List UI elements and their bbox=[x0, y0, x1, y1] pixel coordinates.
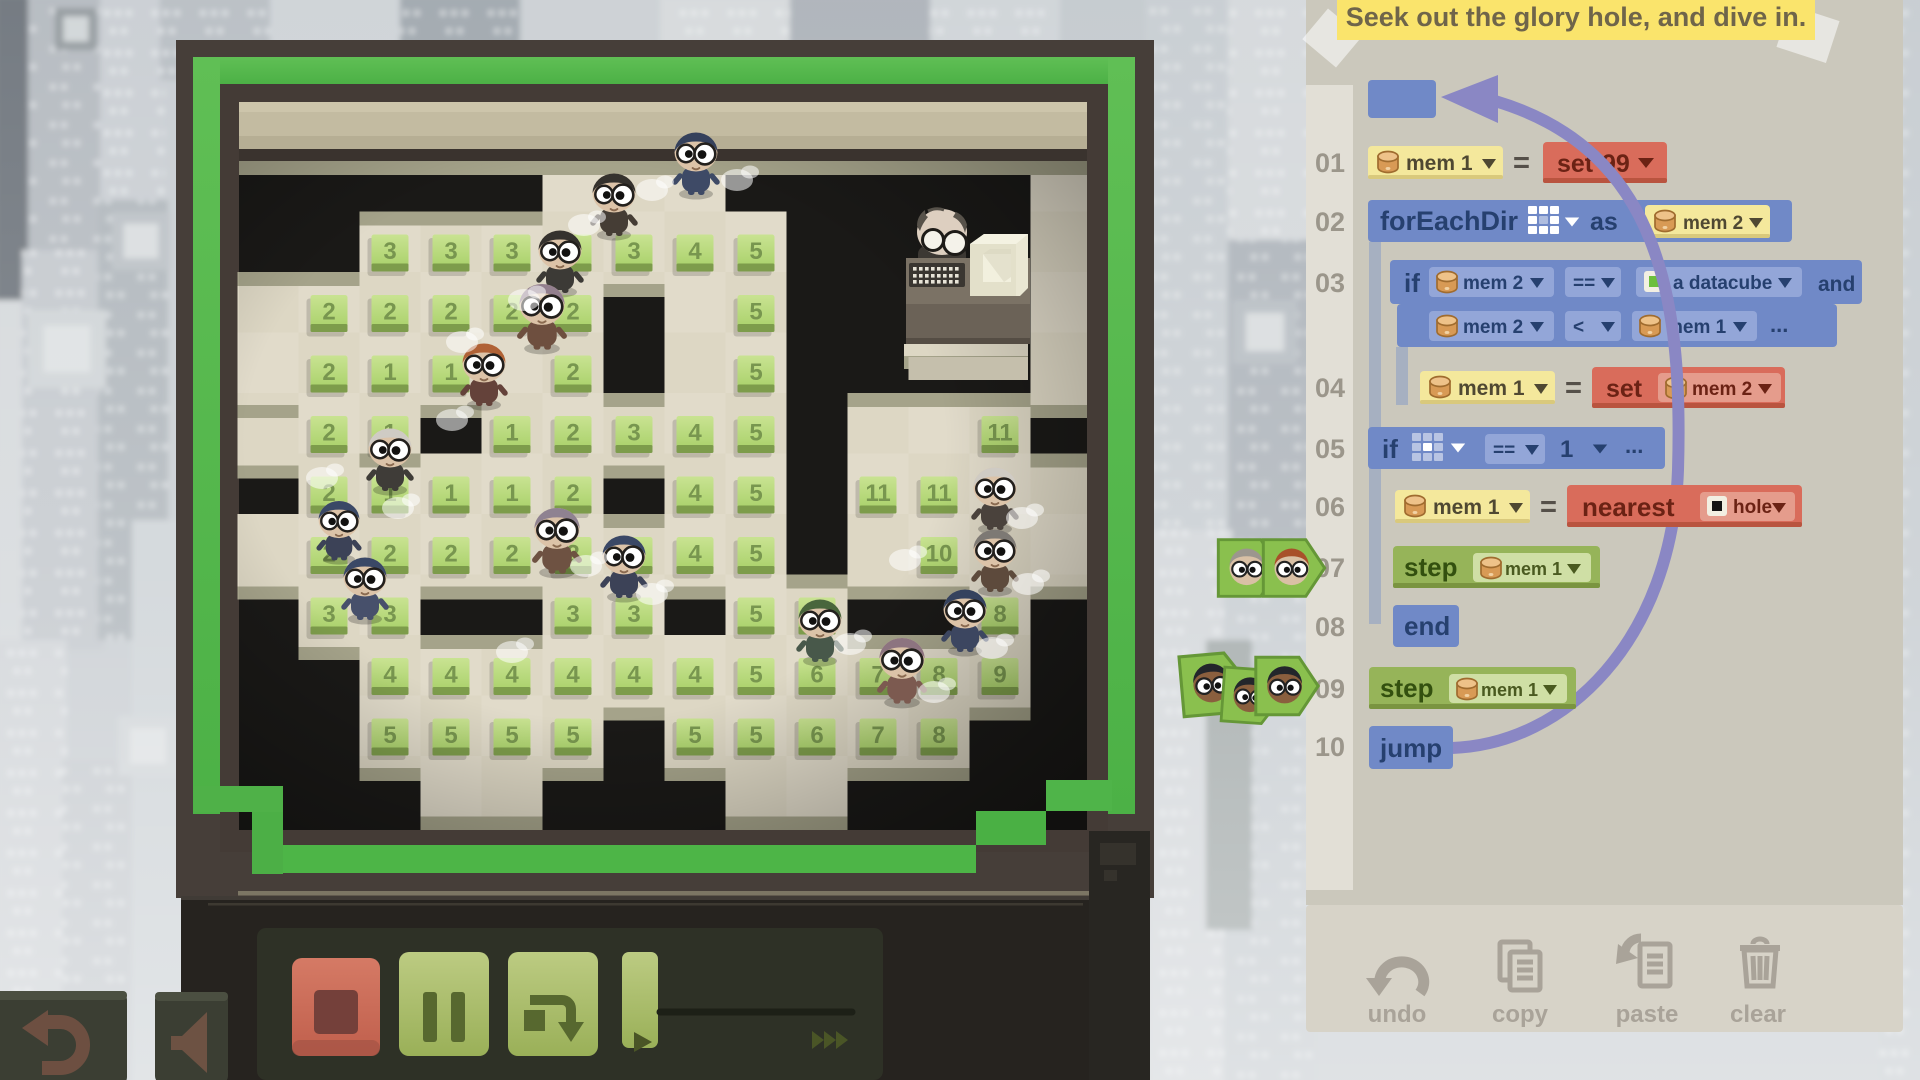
svg-text:nearest: nearest bbox=[1582, 492, 1675, 522]
svg-text:mem 2: mem 2 bbox=[1692, 379, 1752, 400]
svg-text:mem 2: mem 2 bbox=[1683, 213, 1743, 234]
svg-text:1: 1 bbox=[1560, 436, 1573, 463]
svg-text:mem 2: mem 2 bbox=[1463, 273, 1523, 294]
svg-text:01: 01 bbox=[1315, 148, 1345, 178]
svg-text:forEachDir: forEachDir bbox=[1380, 206, 1519, 236]
svg-text:Seek out the glory hole, and d: Seek out the glory hole, and dive in. bbox=[1346, 2, 1807, 32]
svg-text:paste: paste bbox=[1616, 1001, 1679, 1028]
svg-text:jump: jump bbox=[1379, 733, 1442, 763]
svg-text:=: = bbox=[1565, 372, 1582, 404]
svg-text:undo: undo bbox=[1368, 1001, 1427, 1028]
svg-text:02: 02 bbox=[1315, 207, 1345, 237]
svg-text:a datacube: a datacube bbox=[1673, 273, 1772, 294]
svg-text:mem 1: mem 1 bbox=[1481, 680, 1538, 700]
svg-text:copy: copy bbox=[1492, 1001, 1549, 1028]
svg-text:==: == bbox=[1493, 440, 1515, 461]
svg-text:hole: hole bbox=[1733, 497, 1772, 518]
svg-text:05: 05 bbox=[1315, 434, 1345, 464]
svg-text:=: = bbox=[1513, 147, 1530, 179]
svg-text:...: ... bbox=[1625, 433, 1643, 458]
svg-text:=: = bbox=[1540, 491, 1557, 523]
svg-text:mem 1: mem 1 bbox=[1433, 496, 1500, 519]
svg-text:clear: clear bbox=[1730, 1001, 1786, 1028]
svg-text:set: set bbox=[1606, 375, 1643, 403]
svg-text:06: 06 bbox=[1315, 492, 1345, 522]
svg-text:...: ... bbox=[1770, 312, 1788, 337]
svg-text:mem 1: mem 1 bbox=[1505, 559, 1562, 579]
svg-text:if: if bbox=[1382, 434, 1398, 464]
svg-text:and: and bbox=[1818, 273, 1855, 296]
svg-text:step: step bbox=[1404, 552, 1457, 582]
svg-text:mem 2: mem 2 bbox=[1463, 317, 1523, 338]
svg-text:08: 08 bbox=[1315, 612, 1345, 642]
svg-text:==: == bbox=[1573, 273, 1595, 294]
svg-text:10: 10 bbox=[1315, 732, 1345, 762]
svg-text:if: if bbox=[1404, 268, 1420, 298]
svg-text:as: as bbox=[1590, 208, 1618, 236]
svg-text:end: end bbox=[1404, 611, 1450, 641]
svg-text:09: 09 bbox=[1315, 674, 1345, 704]
svg-text:mem 1: mem 1 bbox=[1458, 377, 1525, 400]
svg-text:03: 03 bbox=[1315, 268, 1345, 298]
svg-text:04: 04 bbox=[1315, 373, 1345, 403]
svg-text:mem 1: mem 1 bbox=[1406, 152, 1473, 175]
svg-text:step: step bbox=[1380, 673, 1433, 703]
svg-text:<: < bbox=[1573, 317, 1584, 338]
